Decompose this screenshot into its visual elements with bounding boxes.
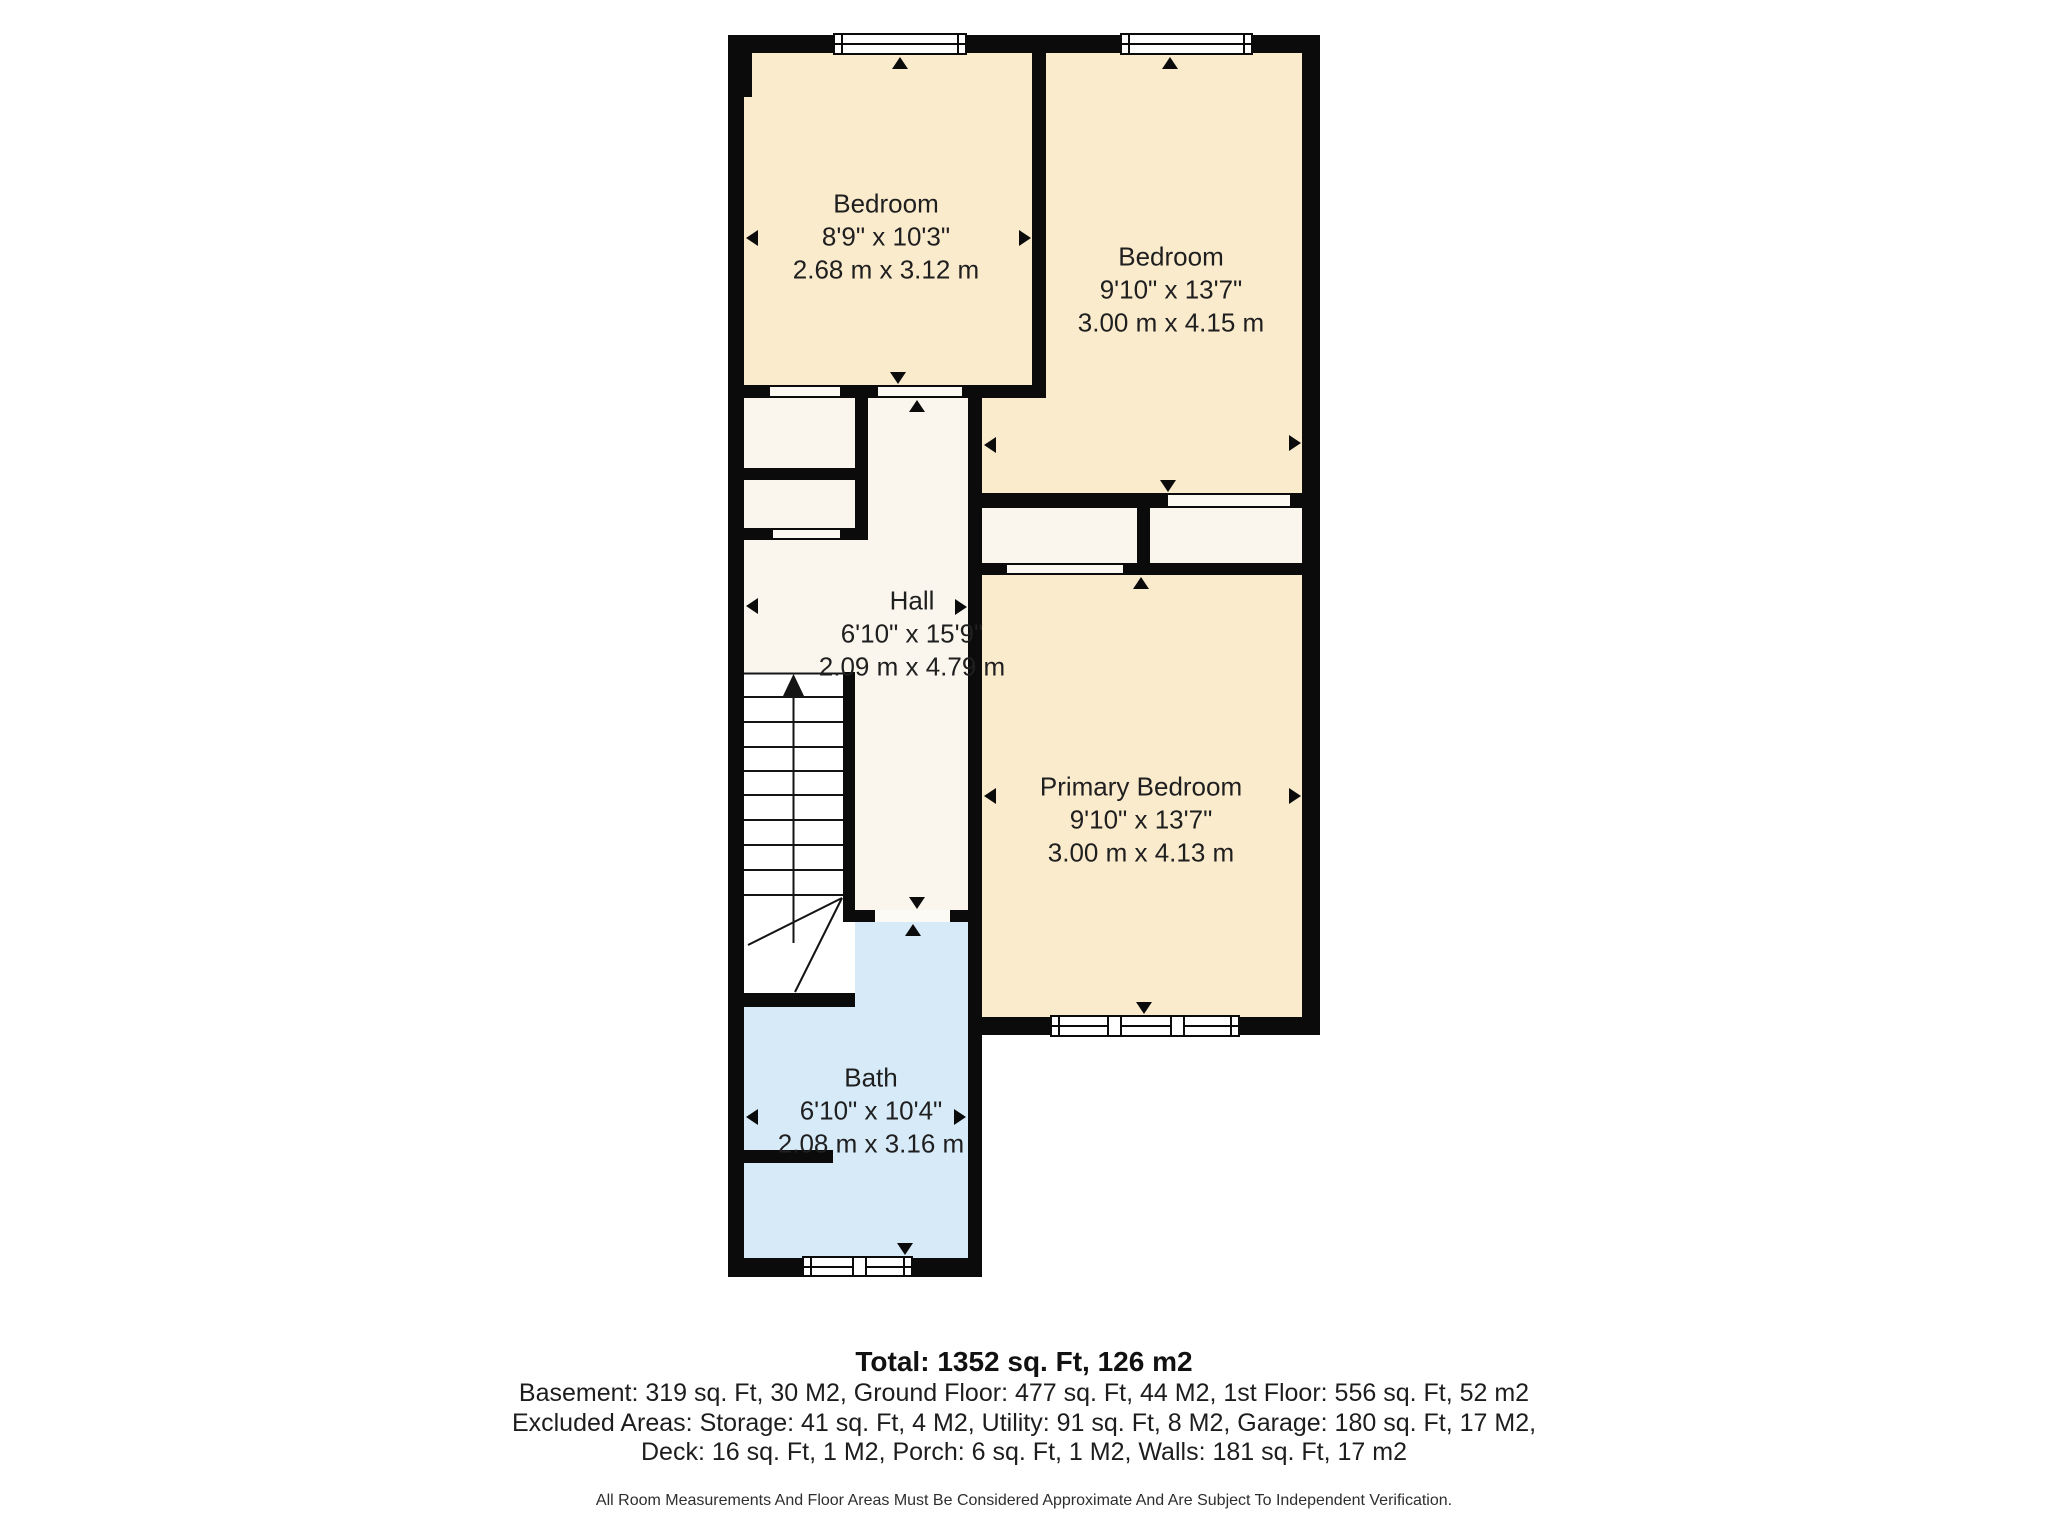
wall — [855, 385, 868, 540]
dim-arrow-down-icon — [909, 897, 925, 909]
wall — [744, 35, 752, 97]
doorway-bedroom-2-closet — [1168, 493, 1290, 508]
dim-arrow-up-icon — [1133, 577, 1149, 589]
dim-arrow-right-icon — [1289, 435, 1301, 451]
doorway-bath — [875, 910, 950, 922]
dim-arrow-down-icon — [897, 1243, 913, 1255]
room-dims-metric: 2.09 m x 4.79 m — [819, 651, 1005, 684]
closet-1-floor — [742, 396, 858, 472]
staircase-treads — [744, 672, 843, 993]
dim-arrow-left-icon — [746, 1109, 758, 1125]
wall — [843, 910, 875, 922]
wall — [843, 672, 855, 912]
wall — [968, 563, 1007, 575]
floor-areas-text: Basement: 319 sq. Ft, 30 M2, Ground Floo… — [0, 1378, 2048, 1408]
wall — [728, 468, 868, 480]
room-name: Primary Bedroom — [1040, 771, 1242, 804]
wall — [840, 528, 868, 540]
room-dims-imperial: 6'10" x 10'4" — [778, 1095, 964, 1128]
window-bedroom-1 — [833, 33, 967, 55]
room-label-primary-bedroom: Primary Bedroom 9'10" x 13'7" 3.00 m x 4… — [1040, 771, 1242, 870]
room-label-bedroom-1: Bedroom 8'9" x 10'3" 2.68 m x 3.12 m — [793, 188, 979, 287]
total-area-text: Total: 1352 sq. Ft, 126 m2 — [0, 1347, 2048, 1377]
window-bedroom-2 — [1120, 33, 1253, 55]
excluded-areas-text-2: Deck: 16 sq. Ft, 1 M2, Porch: 6 sq. Ft, … — [0, 1437, 2048, 1467]
wall — [1123, 563, 1302, 575]
wall — [1290, 493, 1302, 508]
wall — [728, 993, 855, 1007]
dim-arrow-left-icon — [984, 788, 996, 804]
dim-arrow-down-icon — [890, 372, 906, 384]
room-name: Bedroom — [793, 188, 979, 221]
stairs-up-arrow-icon — [783, 674, 804, 696]
dim-arrow-down-icon — [1136, 1002, 1152, 1014]
dim-arrow-up-icon — [905, 924, 921, 936]
disclaimer-text: All Room Measurements And Floor Areas Mu… — [0, 1486, 2048, 1516]
wall — [950, 910, 982, 922]
room-label-bath: Bath 6'10" x 10'4" 2.08 m x 3.16 m — [778, 1062, 964, 1161]
dim-arrow-right-icon — [1019, 230, 1031, 246]
wall — [1032, 35, 1046, 398]
wall — [728, 385, 770, 398]
window-primary-bedroom — [1050, 1015, 1240, 1037]
doorway-closet-2 — [773, 528, 840, 540]
room-dims-metric: 3.00 m x 4.15 m — [1078, 307, 1264, 340]
wall — [728, 528, 773, 540]
window-bath — [802, 1256, 913, 1277]
room-name: Bath — [778, 1062, 964, 1095]
wall — [1137, 508, 1150, 563]
floor-plan-page: Bedroom 8'9" x 10'3" 2.68 m x 3.12 m Bed… — [0, 0, 2048, 1536]
dim-arrow-right-icon — [1289, 788, 1301, 804]
doorway-primary-closet — [1007, 563, 1123, 575]
room-name: Bedroom — [1078, 241, 1264, 274]
room-dims-imperial: 6'10" x 15'9" — [819, 618, 1005, 651]
dim-arrow-up-icon — [1162, 57, 1178, 69]
room-dims-imperial: 9'10" x 13'7" — [1078, 274, 1264, 307]
room-dims-metric: 2.68 m x 3.12 m — [793, 254, 979, 287]
doorway-closet-1 — [770, 385, 840, 398]
room-dims-metric: 2.08 m x 3.16 m — [778, 1128, 964, 1161]
room-dims-imperial: 9'10" x 13'7" — [1040, 804, 1242, 837]
dim-arrow-up-icon — [909, 400, 925, 412]
room-dims-metric: 3.00 m x 4.13 m — [1040, 837, 1242, 870]
excluded-areas-text: Excluded Areas: Storage: 41 sq. Ft, 4 M2… — [0, 1408, 2048, 1438]
closet-2-floor — [742, 476, 858, 532]
room-dims-imperial: 8'9" x 10'3" — [793, 221, 979, 254]
wall — [728, 35, 744, 1277]
dim-arrow-up-icon — [892, 57, 908, 69]
dim-arrow-left-icon — [984, 437, 996, 453]
doorway-hall-top — [878, 385, 962, 398]
staircase — [744, 672, 843, 993]
room-label-hall: Hall 6'10" x 15'9" 2.09 m x 4.79 m — [819, 585, 1005, 684]
wall — [968, 493, 1168, 508]
room-name: Hall — [819, 585, 1005, 618]
room-label-bedroom-2: Bedroom 9'10" x 13'7" 3.00 m x 4.15 m — [1078, 241, 1264, 340]
wall — [1302, 35, 1320, 1035]
wall — [968, 385, 982, 1277]
dim-arrow-left-icon — [746, 230, 758, 246]
dim-arrow-down-icon — [1160, 480, 1176, 492]
dim-arrow-left-icon — [746, 598, 758, 614]
